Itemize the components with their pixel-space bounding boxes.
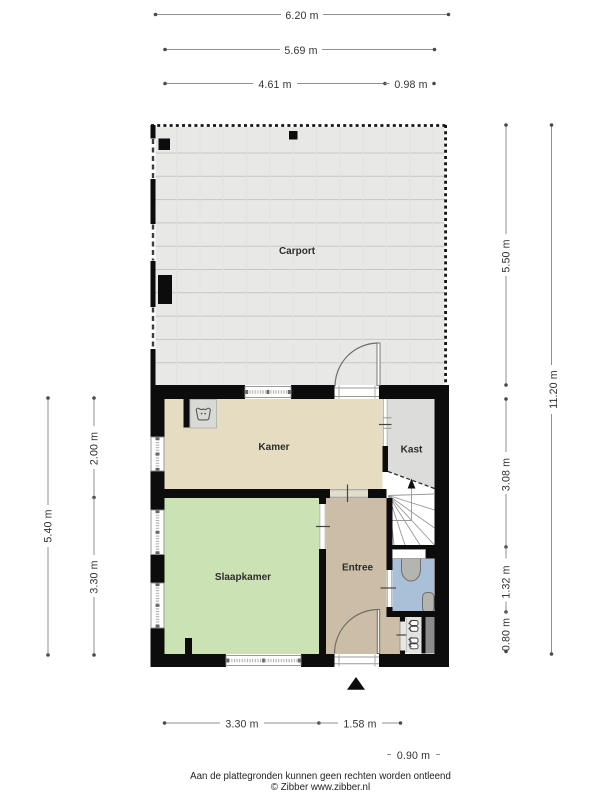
svg-text:Kast: Kast: [401, 445, 423, 456]
svg-text:5.40 m: 5.40 m: [43, 509, 55, 542]
svg-text:11.20 m: 11.20 m: [548, 370, 560, 409]
svg-text:1.32 m: 1.32 m: [501, 565, 513, 598]
svg-text:Entree: Entree: [342, 563, 374, 574]
svg-text:Carport: Carport: [279, 246, 316, 257]
svg-text:Slaapkamer: Slaapkamer: [215, 572, 271, 583]
svg-text:5.69 m: 5.69 m: [284, 45, 317, 57]
svg-text:5.50 m: 5.50 m: [501, 239, 513, 272]
svg-text:6.20 m: 6.20 m: [285, 10, 318, 22]
svg-text:© Zibber www.zibber.nl: © Zibber www.zibber.nl: [271, 782, 370, 793]
svg-text:3.08 m: 3.08 m: [501, 458, 513, 491]
svg-text:3.30 m: 3.30 m: [89, 560, 101, 593]
svg-text:0.90 m: 0.90 m: [397, 750, 430, 762]
svg-text:2.00 m: 2.00 m: [89, 432, 101, 465]
svg-text:1.58 m: 1.58 m: [343, 719, 376, 731]
svg-text:0.80 m: 0.80 m: [501, 618, 513, 651]
svg-text:Aan de plattegronden kunnen ge: Aan de plattegronden kunnen geen rechten…: [190, 771, 451, 782]
svg-text:3.30 m: 3.30 m: [225, 719, 258, 731]
svg-text:Kamer: Kamer: [258, 442, 289, 453]
svg-text:4.61 m: 4.61 m: [258, 79, 291, 91]
svg-text:0.98 m: 0.98 m: [394, 79, 427, 91]
